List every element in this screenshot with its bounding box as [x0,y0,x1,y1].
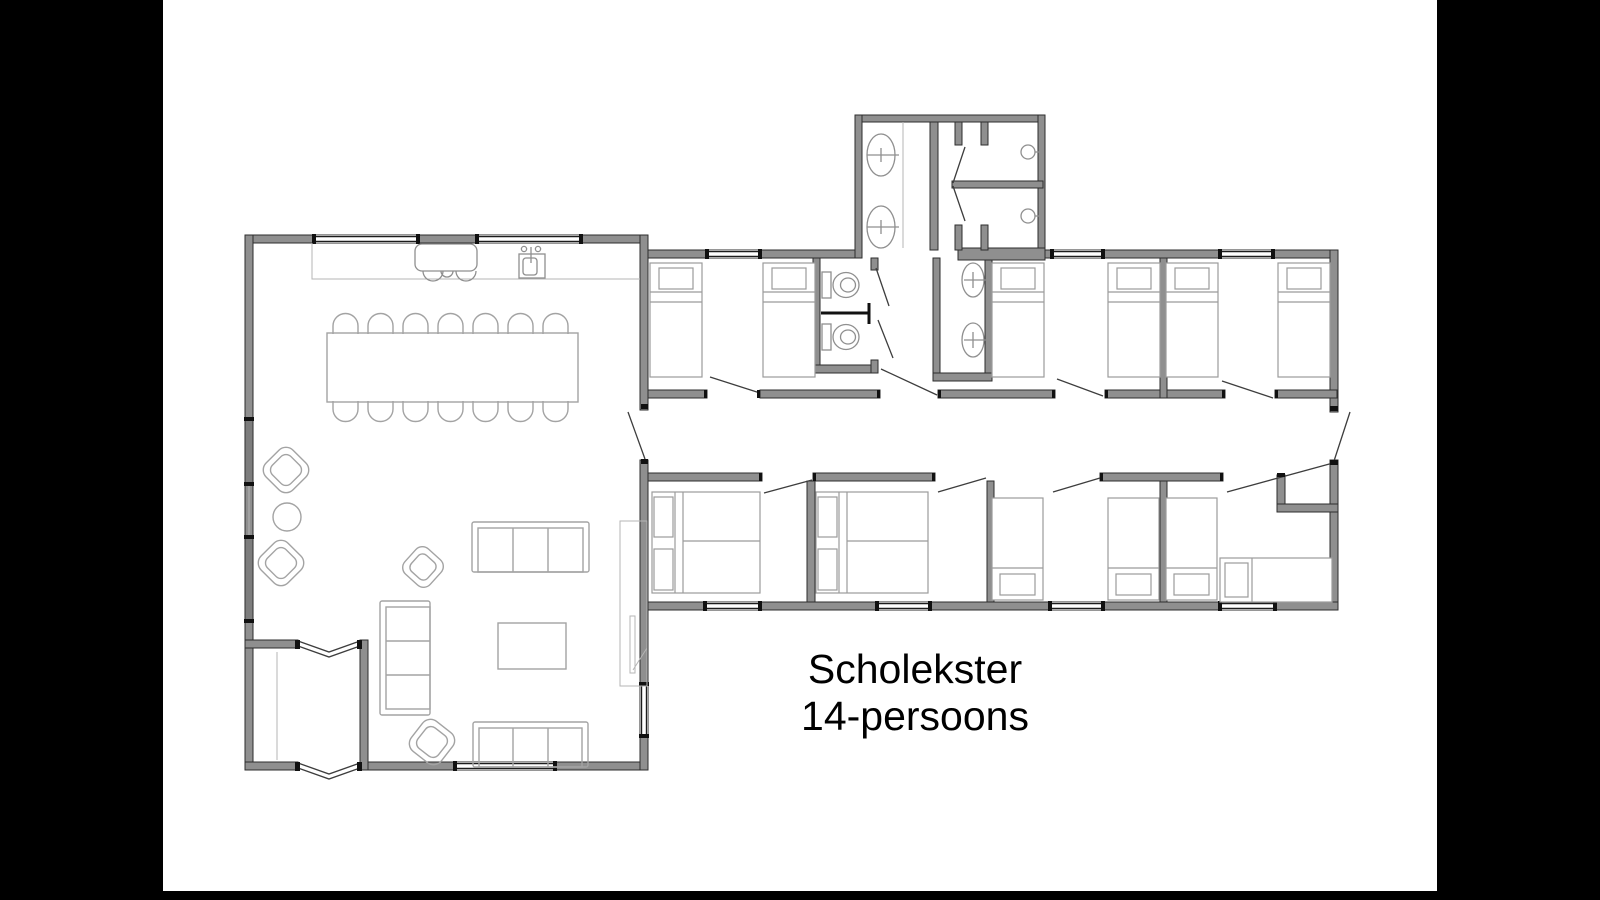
dining-table [327,333,578,402]
double-bed-icon [816,492,928,593]
window [703,601,762,611]
single-bed-icon [1166,498,1217,600]
letterbox-bottom [0,891,1600,900]
single-bed-icon [650,263,702,377]
single-bed-icon [1278,263,1330,377]
window [312,234,420,244]
window [1218,249,1275,259]
double-bed-icon [652,492,760,593]
floor-plan [0,0,1600,900]
window [639,682,649,738]
plan-title: Scholekster [715,646,1115,693]
single-bed-icon [1166,263,1218,377]
letterbox-right [1437,0,1600,900]
window [705,249,762,259]
single-bed-icon [1220,558,1332,602]
window [875,601,932,611]
window [1048,601,1105,611]
caption: Scholekster 14-persoons [715,646,1115,740]
window [453,761,557,771]
single-bed-icon [763,263,815,377]
window [1050,249,1105,259]
floor-plan-page: Scholekster 14-persoons [0,0,1600,900]
plan-capacity: 14-persoons [715,693,1115,740]
single-bed-icon [1108,263,1160,377]
letterbox-left [0,0,163,900]
plan-background [0,0,1600,900]
single-bed-icon [992,498,1043,600]
window [475,234,583,244]
single-bed-icon [1108,498,1159,600]
single-bed-icon [992,263,1044,377]
